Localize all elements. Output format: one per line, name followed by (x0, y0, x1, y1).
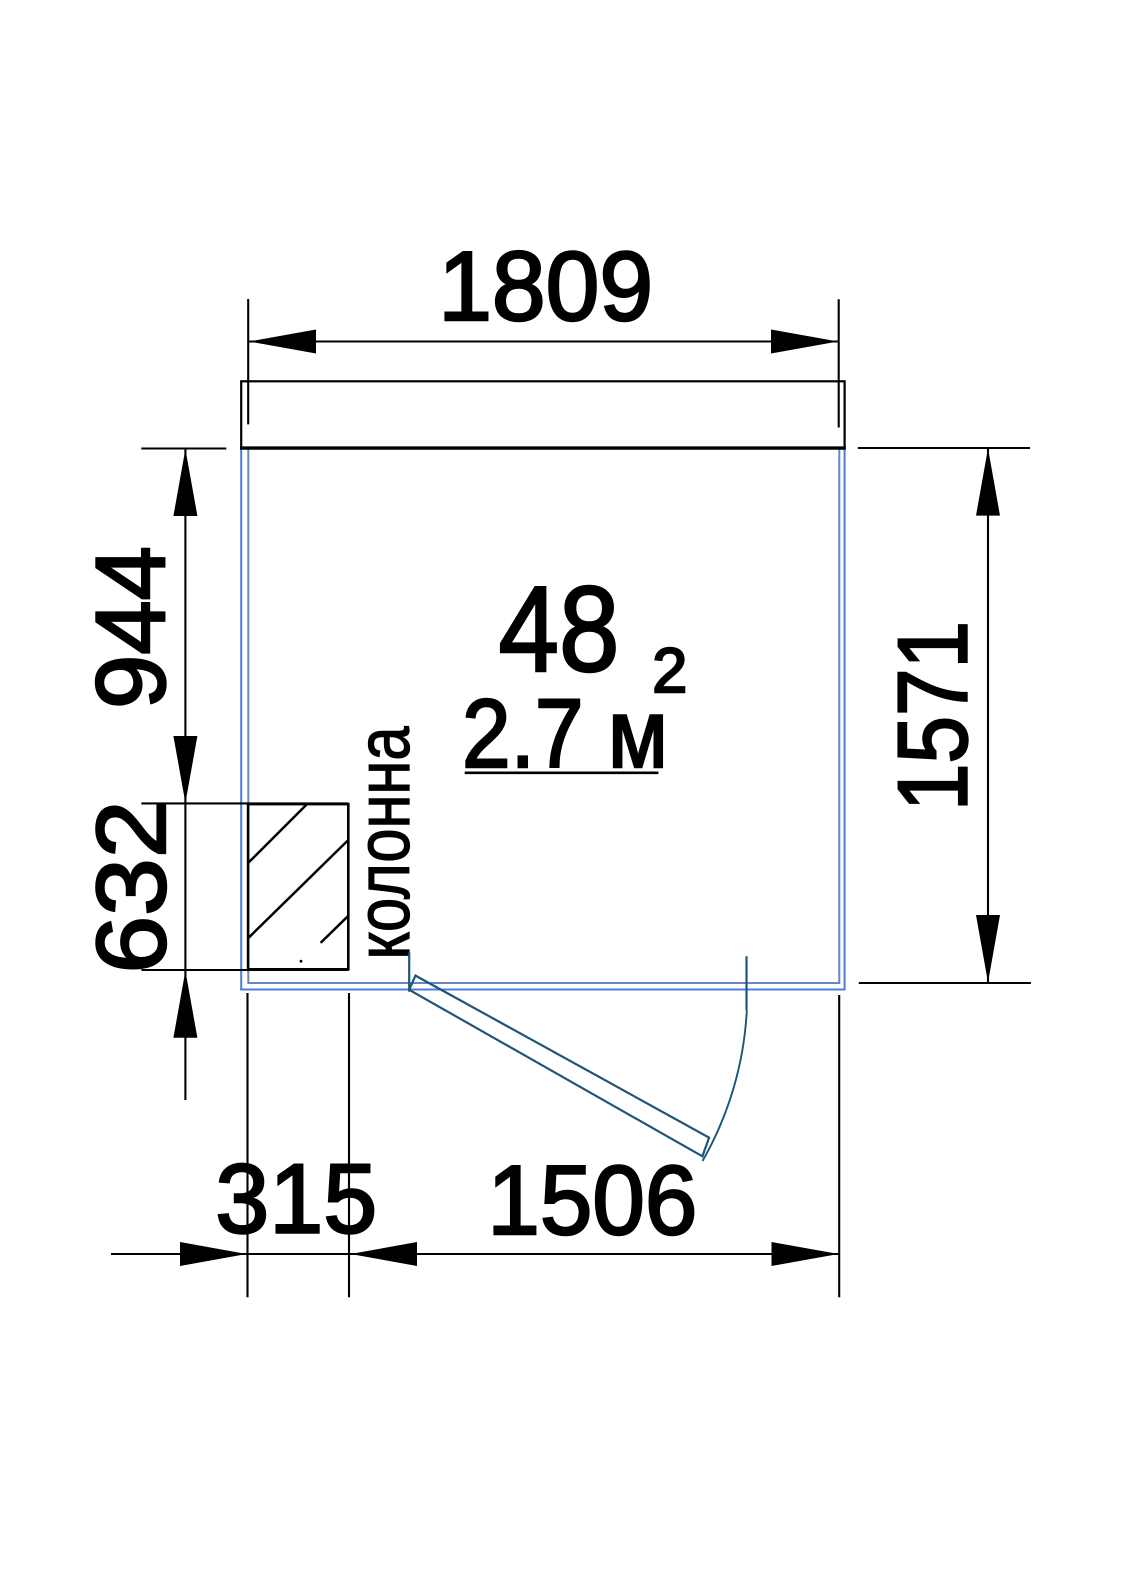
svg-text:колонна: колонна (341, 726, 425, 959)
svg-text:1506: 1506 (487, 1145, 697, 1255)
svg-text:315: 315 (215, 1144, 377, 1254)
svg-text:944: 944 (76, 546, 186, 709)
svg-text:48: 48 (499, 561, 620, 697)
svg-text:632: 632 (76, 801, 186, 974)
svg-text:1571: 1571 (878, 621, 988, 811)
svg-text:1809: 1809 (438, 231, 653, 341)
svg-text:2: 2 (652, 636, 687, 706)
